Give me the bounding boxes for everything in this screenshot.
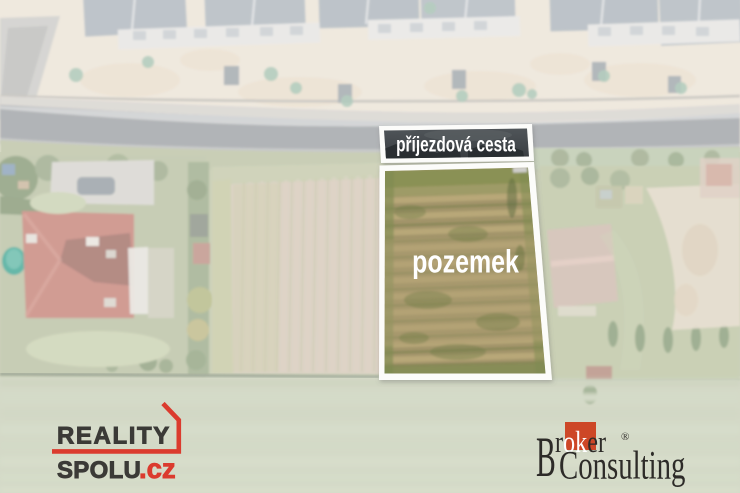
svg-text:REALITY: REALITY [57, 423, 171, 450]
svg-text:SPOLU: SPOLU [57, 457, 141, 484]
svg-text:příjezdová cesta: příjezdová cesta [396, 132, 516, 156]
svg-text:Consulting: Consulting [559, 443, 685, 488]
svg-text:.cz: .cz [139, 453, 176, 484]
svg-text:B: B [536, 426, 556, 489]
svg-text:pozemek: pozemek [412, 245, 519, 281]
svg-text:®: ® [621, 431, 629, 443]
